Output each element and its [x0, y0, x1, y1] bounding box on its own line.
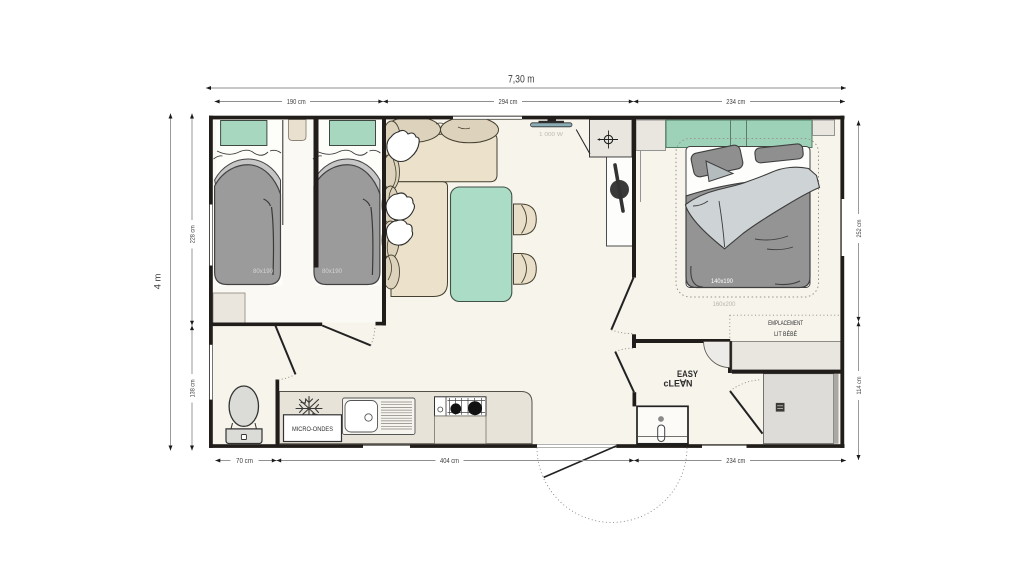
svg-text:234 cm: 234 cm [726, 99, 745, 106]
svg-text:EMPLACEMENT: EMPLACEMENT [768, 320, 803, 327]
svg-text:404 cm: 404 cm [440, 458, 459, 465]
svg-text:190 cm: 190 cm [287, 99, 306, 106]
svg-text:138 cm: 138 cm [189, 379, 196, 397]
svg-text:80x190: 80x190 [322, 268, 342, 275]
svg-text:cLE∀N: cLE∀N [664, 379, 693, 389]
svg-text:7,30 m: 7,30 m [508, 74, 535, 86]
svg-text:70 cm: 70 cm [236, 458, 253, 465]
svg-text:80x190: 80x190 [253, 268, 273, 275]
svg-text:252 cm: 252 cm [856, 219, 863, 237]
svg-text:MICRO-ONDES: MICRO-ONDES [292, 427, 333, 433]
svg-text:160x200: 160x200 [713, 301, 737, 308]
svg-text:228 cm: 228 cm [189, 225, 196, 243]
svg-text:234 cm: 234 cm [726, 458, 745, 465]
svg-text:LIT BÉBÉ: LIT BÉBÉ [774, 331, 797, 338]
svg-text:140x190: 140x190 [711, 279, 734, 285]
svg-text:4 m: 4 m [153, 273, 164, 289]
svg-text:114 cm: 114 cm [856, 376, 863, 394]
svg-text:EASY: EASY [677, 369, 699, 379]
svg-text:1 000 W: 1 000 W [539, 132, 563, 138]
svg-text:294 cm: 294 cm [499, 99, 518, 106]
